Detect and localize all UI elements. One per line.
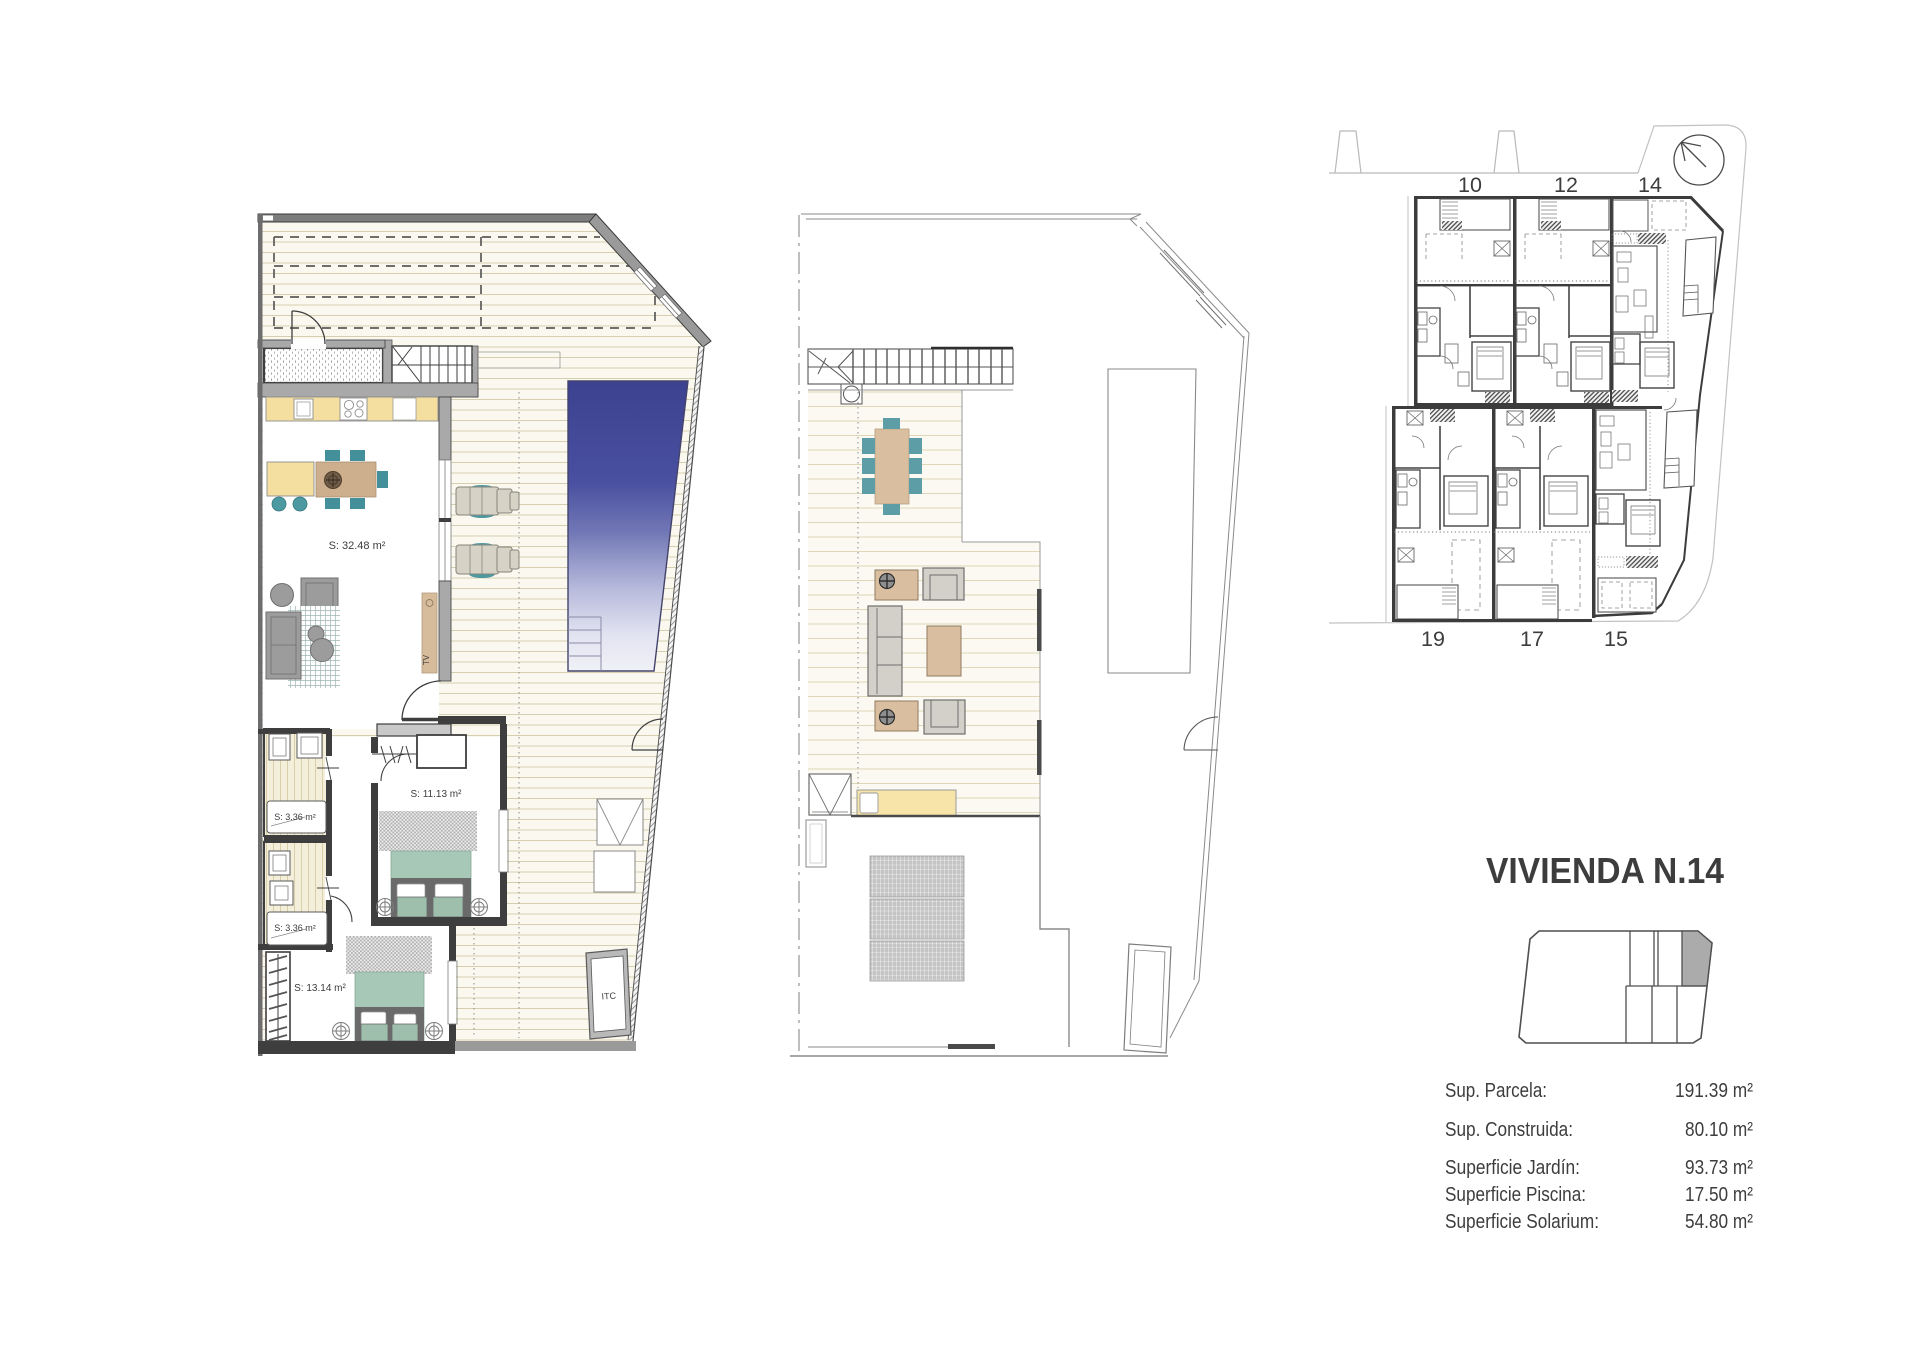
svg-text:19: 19 (1421, 627, 1445, 651)
svg-text:S: 13.14 m²: S: 13.14 m² (294, 983, 346, 994)
svg-text:15: 15 (1604, 627, 1628, 651)
svg-text:10: 10 (1458, 173, 1482, 197)
svg-text:S: 32.48 m²: S: 32.48 m² (329, 540, 386, 552)
svg-text:Superficie Jardín:: Superficie Jardín: (1445, 1156, 1580, 1179)
svg-text:80.10 m²: 80.10 m² (1685, 1118, 1753, 1141)
svg-text:S: 3.36 m²: S: 3.36 m² (274, 923, 316, 933)
svg-text:14: 14 (1638, 173, 1662, 197)
svg-text:12: 12 (1554, 173, 1578, 197)
svg-text:Sup. Construida:: Sup. Construida: (1445, 1118, 1573, 1141)
svg-text:S: 3.36 m²: S: 3.36 m² (274, 812, 316, 822)
svg-text:17: 17 (1520, 627, 1544, 651)
svg-text:Superficie Piscina:: Superficie Piscina: (1445, 1183, 1586, 1206)
svg-text:191.39 m²: 191.39 m² (1675, 1079, 1753, 1102)
svg-text:17.50 m²: 17.50 m² (1685, 1183, 1753, 1206)
svg-text:Superficie Solarium:: Superficie Solarium: (1445, 1210, 1599, 1233)
svg-text:ITC: ITC (601, 990, 617, 1001)
svg-text:54.80 m²: 54.80 m² (1685, 1210, 1753, 1233)
svg-text:TV: TV (422, 654, 431, 665)
svg-text:S: 11.13 m²: S: 11.13 m² (411, 789, 463, 800)
svg-text:VIVIENDA N.14: VIVIENDA N.14 (1486, 850, 1724, 891)
svg-text:93.73 m²: 93.73 m² (1685, 1156, 1753, 1179)
svg-text:Sup. Parcela:: Sup. Parcela: (1445, 1079, 1547, 1102)
